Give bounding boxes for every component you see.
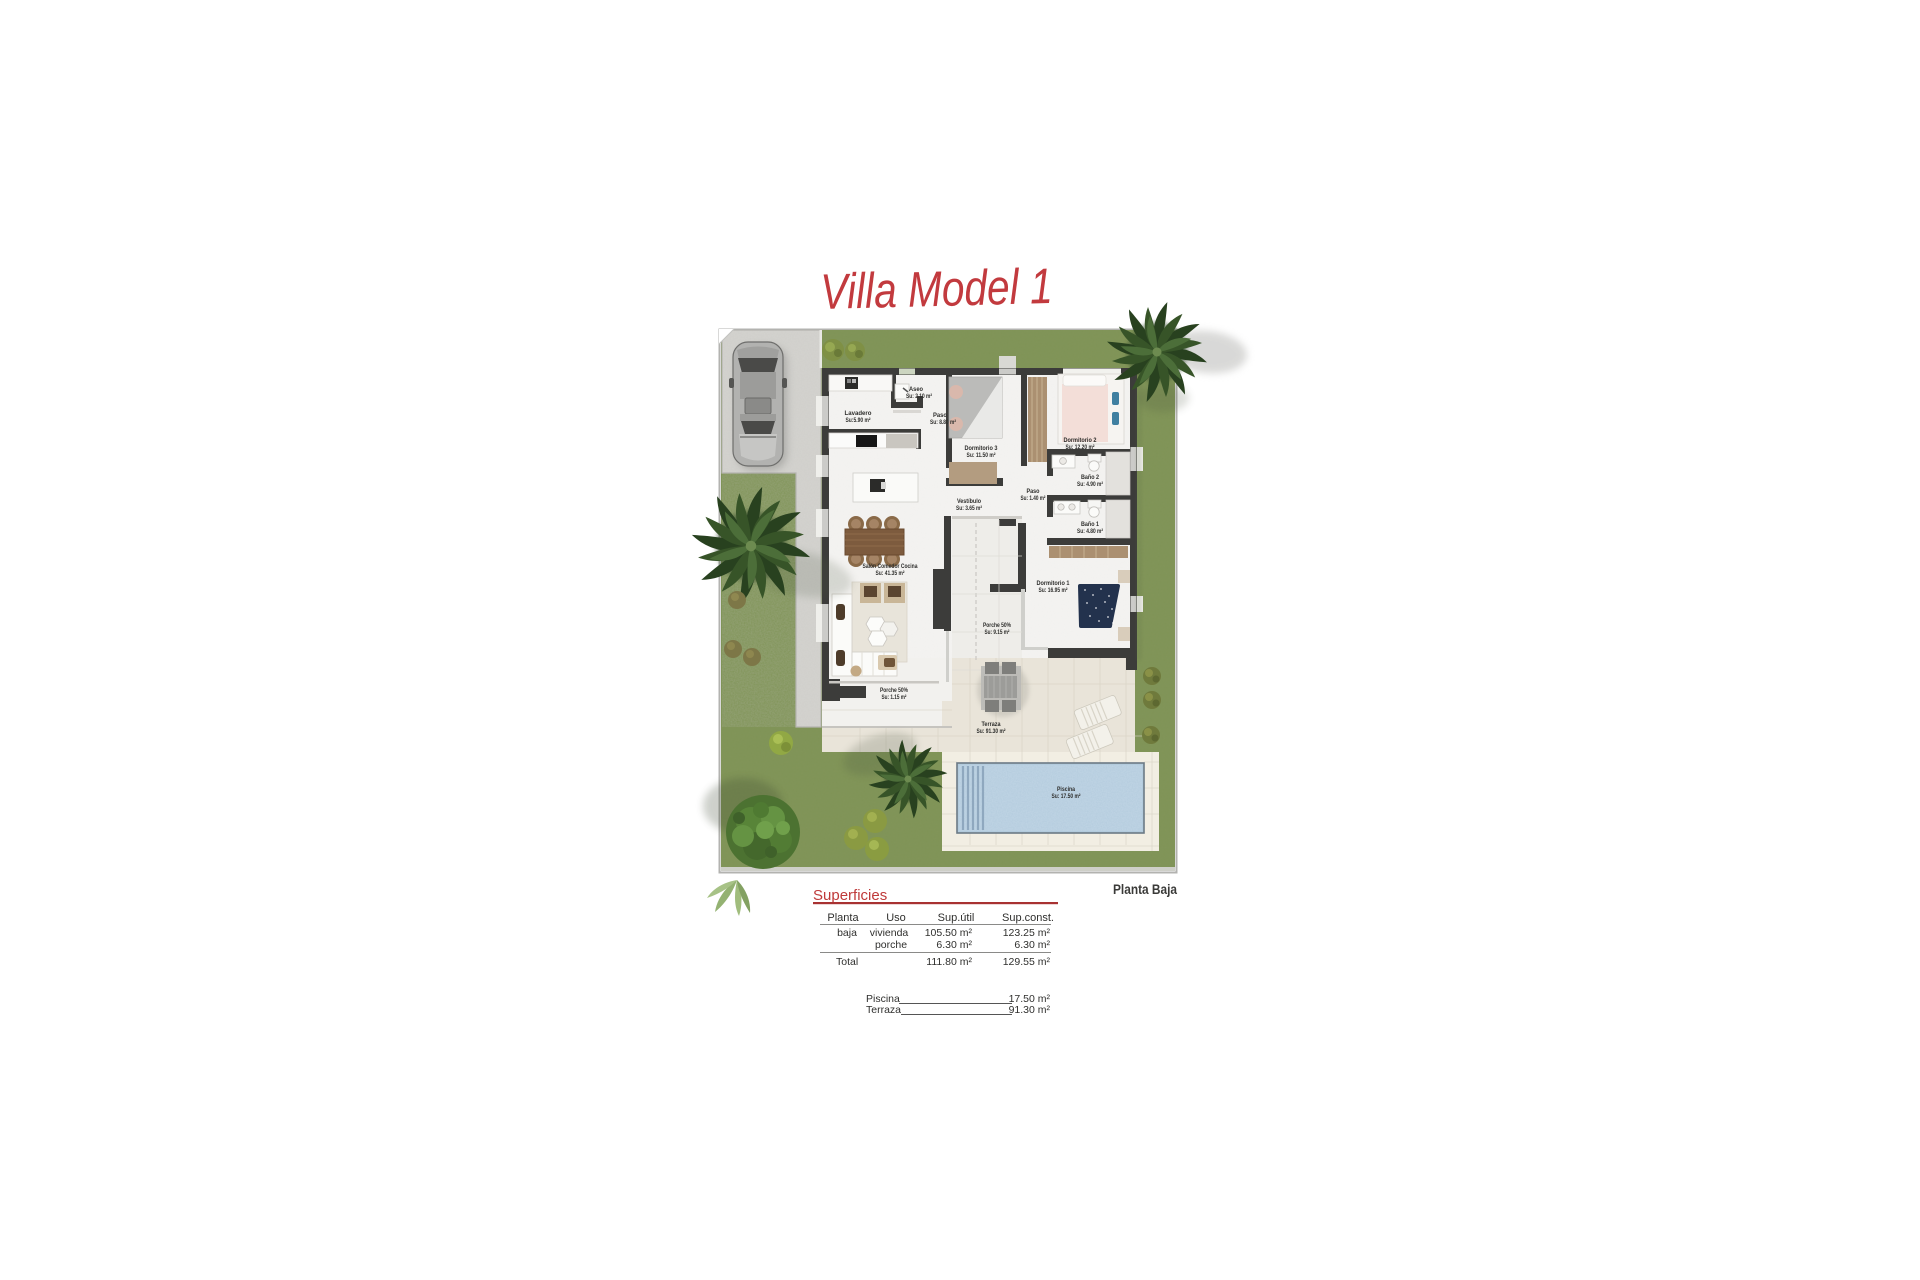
svg-text:Planta Baja: Planta Baja — [1113, 882, 1177, 897]
svg-text:porche: porche — [875, 939, 907, 951]
svg-text:123.25 m²: 123.25 m² — [1003, 927, 1051, 939]
svg-text:111.80 m²: 111.80 m² — [926, 956, 972, 968]
svg-text:Su: 16.95 m²: Su: 16.95 m² — [1039, 587, 1068, 594]
svg-text:baja: baja — [837, 927, 857, 939]
svg-text:Villa Model 1: Villa Model 1 — [820, 258, 1053, 320]
svg-text:Su:5.90 m²: Su:5.90 m² — [846, 417, 871, 424]
svg-text:Su: 4.90 m²: Su: 4.90 m² — [1077, 481, 1103, 488]
svg-text:Dormitorio 3: Dormitorio 3 — [965, 445, 998, 452]
svg-text:Paso: Paso — [1027, 488, 1040, 495]
svg-text:129.55 m²: 129.55 m² — [1003, 956, 1051, 968]
svg-text:6.30 m²: 6.30 m² — [936, 939, 972, 951]
svg-text:105.50 m²: 105.50 m² — [925, 927, 973, 939]
svg-text:Su: 1.15 m²: Su: 1.15 m² — [882, 694, 907, 701]
svg-text:Planta: Planta — [827, 912, 859, 924]
svg-text:Dormitorio 1: Dormitorio 1 — [1037, 580, 1070, 587]
svg-text:Baño 2: Baño 2 — [1081, 474, 1099, 481]
svg-text:Porche 50%: Porche 50% — [880, 687, 908, 694]
svg-text:Piscina: Piscina — [1057, 786, 1075, 793]
svg-text:Uso: Uso — [886, 912, 906, 924]
svg-text:Su: 9.15 m²: Su: 9.15 m² — [985, 629, 1010, 636]
svg-text:Salón Comedor Cocina: Salón Comedor Cocina — [863, 563, 918, 570]
svg-text:Su: 2.10 m²: Su: 2.10 m² — [906, 393, 932, 400]
svg-text:Terraza: Terraza — [866, 1004, 901, 1016]
svg-text:Su: 11.50 m²: Su: 11.50 m² — [967, 452, 996, 459]
svg-text:Porche 50%: Porche 50% — [983, 622, 1011, 629]
svg-text:Su: 3.65 m²: Su: 3.65 m² — [956, 505, 982, 512]
svg-text:Sup.útil: Sup.útil — [938, 912, 975, 924]
svg-text:vivienda: vivienda — [870, 927, 909, 939]
svg-text:Total: Total — [836, 956, 858, 968]
svg-text:Su: 1.40 m²: Su: 1.40 m² — [1021, 495, 1046, 502]
svg-text:Su: 41.35 m²: Su: 41.35 m² — [876, 570, 905, 577]
svg-text:Su: 12.20 m²: Su: 12.20 m² — [1066, 444, 1095, 451]
svg-text:Aseo: Aseo — [909, 386, 923, 393]
svg-text:91.30 m²: 91.30 m² — [1009, 1004, 1051, 1016]
svg-text:Dormitorio 2: Dormitorio 2 — [1064, 437, 1097, 444]
svg-text:Su: 91.30 m²: Su: 91.30 m² — [977, 728, 1006, 735]
svg-text:Vestíbulo: Vestíbulo — [957, 498, 981, 505]
svg-text:Superficies: Superficies — [813, 887, 887, 904]
svg-text:Lavadero: Lavadero — [845, 410, 872, 417]
svg-text:6.30 m²: 6.30 m² — [1014, 939, 1050, 951]
svg-text:Su: 17.50 m²: Su: 17.50 m² — [1052, 793, 1081, 800]
svg-text:Su: 4.80 m²: Su: 4.80 m² — [1077, 528, 1103, 535]
svg-text:Terraza: Terraza — [982, 721, 1001, 728]
svg-text:Su: 8.80 m²: Su: 8.80 m² — [930, 419, 956, 426]
svg-text:Paso: Paso — [933, 412, 947, 419]
svg-text:Sup.const.: Sup.const. — [1002, 912, 1054, 924]
svg-text:Baño 1: Baño 1 — [1081, 521, 1099, 528]
